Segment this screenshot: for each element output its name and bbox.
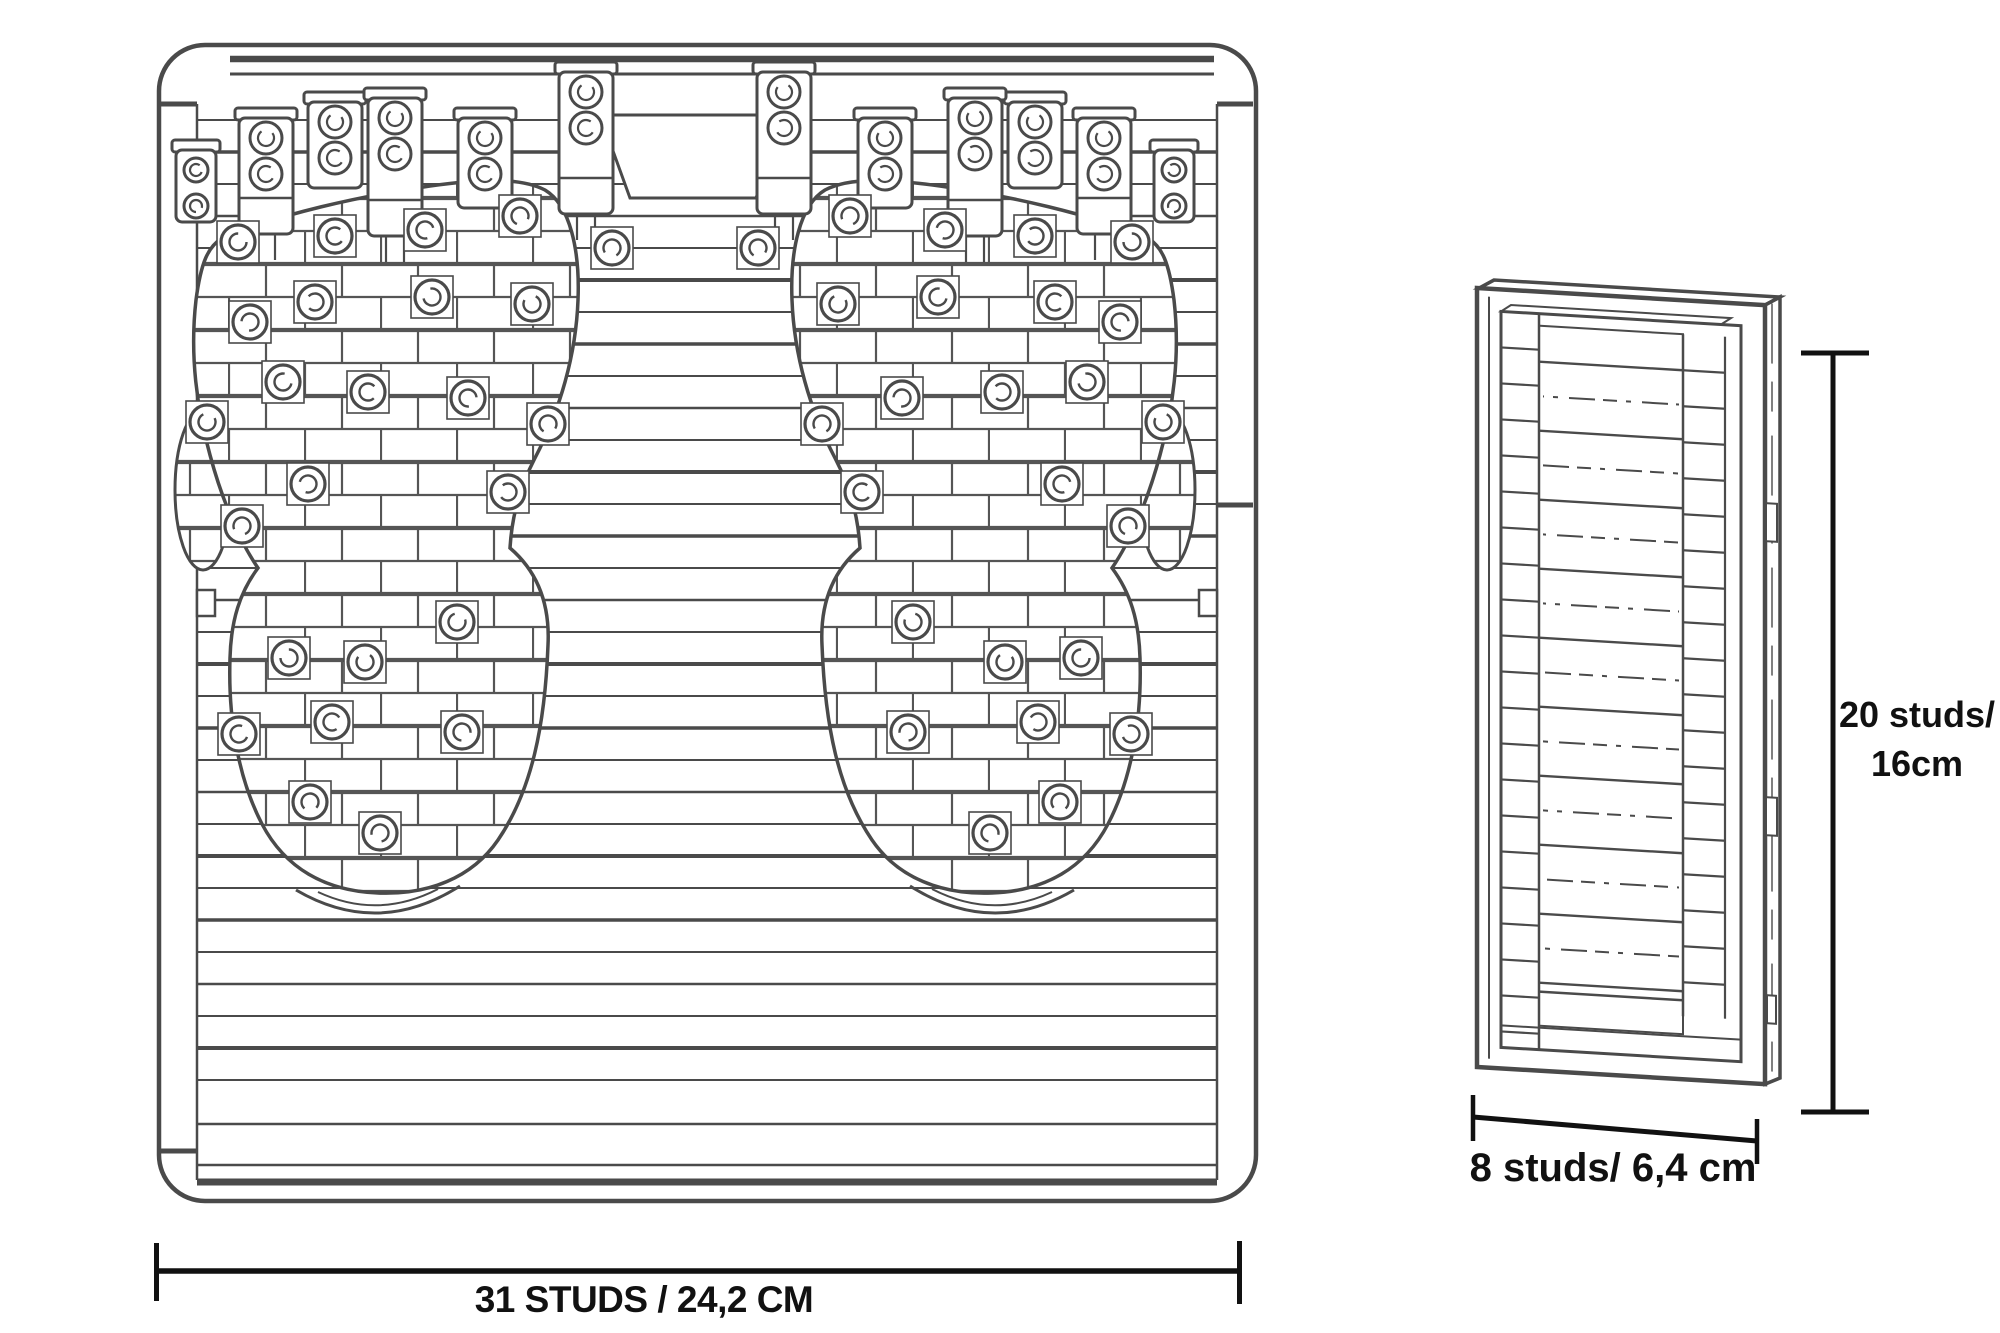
- stud-ring: [531, 407, 565, 441]
- stud-icon: [499, 195, 541, 237]
- pin-wheel: [250, 158, 282, 190]
- stud-icon: [441, 711, 483, 753]
- stud-icon: [487, 471, 529, 513]
- stud-ring: [266, 365, 300, 399]
- stud-icon: [311, 701, 353, 743]
- stud-ring: [225, 509, 259, 543]
- stud-ring: [440, 605, 474, 639]
- stud-icon: [527, 403, 569, 445]
- side-view-height-label-line2: 16cm: [1871, 743, 1963, 784]
- pin-wheel: [469, 122, 501, 154]
- pin-wheel: [184, 194, 208, 218]
- pin-wheel: [319, 106, 351, 138]
- stud-icon: [217, 221, 259, 263]
- stud-ring: [348, 645, 382, 679]
- stud-icon: [411, 276, 453, 318]
- stud-ring: [318, 219, 352, 253]
- stud-ring: [415, 280, 449, 314]
- stud-icon: [221, 505, 263, 547]
- panel-front-face: [1477, 288, 1765, 1084]
- side-view-width-label: 8 studs/ 6,4 cm: [1470, 1146, 1757, 1190]
- stud-icon: [287, 463, 329, 505]
- stud-icon: [229, 301, 271, 343]
- stud-ring: [503, 199, 537, 233]
- pin-wheel: [319, 142, 351, 174]
- stud-ring: [222, 717, 256, 751]
- pin-wheel: [250, 122, 282, 154]
- stud-ring: [515, 287, 549, 321]
- pin-wheel: [469, 158, 501, 190]
- stud-ring: [291, 467, 325, 501]
- stud-icon: [268, 637, 310, 679]
- stud-ring: [221, 225, 255, 259]
- stud-icon: [436, 601, 478, 643]
- stud-icon: [511, 283, 553, 325]
- stud-ring: [293, 785, 327, 819]
- stud-icon: [289, 781, 331, 823]
- stud-icon: [447, 377, 489, 419]
- stud-icon: [347, 371, 389, 413]
- lego-panel-dimensions-diagram: 31 STUDS / 24,2 CM 20 studs/ 16cm 8 stud…: [0, 0, 2000, 1333]
- stud-icon: [218, 713, 260, 755]
- toe-pin-assembly: [555, 62, 617, 240]
- pin-wheel: [379, 138, 411, 170]
- stud-ring: [190, 405, 224, 439]
- stud-ring: [451, 381, 485, 415]
- perspective-panel-drawing: [1477, 279, 1780, 1085]
- stud-icon: [314, 215, 356, 257]
- stud-ring: [408, 213, 442, 247]
- side-view-height-label-line1: 20 studs/: [1839, 694, 1995, 735]
- stud-ring: [315, 705, 349, 739]
- stud-icon: [359, 812, 401, 854]
- stud-ring: [491, 475, 525, 509]
- stud-icon: [294, 281, 336, 323]
- stud-ring: [298, 285, 332, 319]
- stud-ring: [363, 816, 397, 850]
- stud-ring: [233, 305, 267, 339]
- front-view-wireframe: [159, 45, 1256, 1201]
- pin-wheel: [570, 112, 602, 144]
- stud-icon: [344, 641, 386, 683]
- stud-icon: [186, 401, 228, 443]
- stud-ring: [351, 375, 385, 409]
- pin-wheel: [184, 158, 208, 182]
- stud-icon: [591, 227, 633, 269]
- toe-pin-assembly: [454, 108, 516, 208]
- pin-wheel: [379, 102, 411, 134]
- technical-drawing-canvas: 31 STUDS / 24,2 CM 20 studs/ 16cm 8 stud…: [0, 0, 2000, 1333]
- stud-icon: [404, 209, 446, 251]
- stud-icon: [262, 361, 304, 403]
- pin-wheel: [570, 76, 602, 108]
- toe-pin-assembly: [172, 140, 220, 222]
- toe-pin-assembly: [304, 92, 366, 188]
- stud-ring: [445, 715, 479, 749]
- front-view-width-label: 31 STUDS / 24,2 CM: [475, 1279, 814, 1320]
- stud-ring: [595, 231, 629, 265]
- stud-ring: [272, 641, 306, 675]
